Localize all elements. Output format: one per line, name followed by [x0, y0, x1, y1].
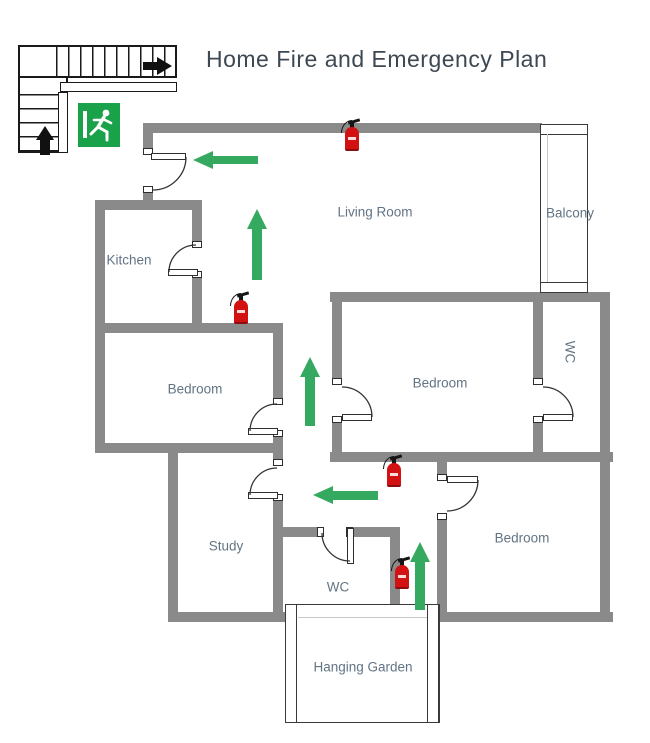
stair-treads: [56, 47, 175, 76]
garden-side-bar: [285, 604, 297, 723]
wall: [273, 333, 283, 402]
balcony-end-bar: [540, 124, 588, 135]
fire-extinguisher-icon: [392, 555, 412, 591]
extinguisher-body: [395, 565, 409, 589]
door-jamb: [533, 378, 543, 385]
door-jamb: [332, 378, 342, 385]
wall: [533, 302, 543, 382]
door-arc: [250, 468, 277, 495]
escape-route-arrow-icon: [300, 357, 320, 426]
wall: [273, 500, 283, 622]
extinguisher-body: [345, 127, 359, 151]
fire-extinguisher-icon: [384, 453, 404, 489]
room-label-wc-upper: WC: [563, 341, 578, 364]
door-jamb: [437, 474, 447, 481]
exit-door-shape: [83, 111, 87, 138]
wall: [283, 527, 320, 537]
room-label-wc-lower: WC: [327, 580, 350, 595]
garden-inner-line: [298, 617, 427, 618]
floor-plan: Home Fire and Emergency Plan: [0, 0, 650, 743]
wall: [95, 323, 283, 333]
stair-treads: [20, 94, 58, 152]
wall: [168, 453, 178, 622]
door-jamb: [533, 416, 543, 423]
wall: [430, 612, 613, 622]
room-label-balcony: Balcony: [546, 206, 594, 221]
door-arc: [447, 480, 478, 511]
door-jamb: [143, 186, 153, 193]
door-arc: [543, 387, 573, 417]
room-label-study: Study: [209, 539, 244, 554]
garden-side-bar: [427, 604, 439, 723]
escape-route-arrow-icon: [247, 209, 267, 280]
page-title: Home Fire and Emergency Plan: [206, 46, 547, 73]
door-jamb: [273, 398, 283, 405]
door-arc: [342, 387, 372, 417]
wall: [192, 210, 202, 245]
escape-route-arrow-icon: [410, 542, 430, 610]
room-label-bedroom-right: Bedroom: [495, 531, 550, 546]
room-label-kitchen: Kitchen: [106, 253, 151, 268]
door-panel: [248, 428, 278, 435]
wall: [600, 292, 610, 622]
extinguisher-body: [234, 300, 248, 324]
wall: [350, 527, 400, 537]
room-label-hanging-garden: Hanging Garden: [313, 660, 412, 675]
running-man-icon: [87, 107, 117, 143]
door-panel: [342, 414, 372, 421]
wall: [95, 200, 202, 210]
door-panel: [347, 528, 354, 564]
wall: [330, 452, 613, 462]
balcony-end-bar: [540, 282, 588, 293]
wall: [168, 612, 292, 622]
door-jamb: [332, 416, 342, 423]
door-arc: [169, 245, 196, 272]
door-panel: [447, 476, 478, 483]
wall: [330, 292, 610, 302]
fire-extinguisher-icon: [342, 117, 362, 153]
escape-route-arrow-icon: [313, 486, 378, 504]
door-arc: [322, 533, 350, 561]
door-jamb: [273, 459, 283, 466]
door-jamb: [317, 527, 324, 537]
extinguisher-body: [387, 463, 401, 487]
escape-route-arrow-icon: [193, 151, 258, 169]
emergency-exit-sign-icon: [78, 103, 120, 147]
room-label-living-room: Living Room: [337, 205, 412, 220]
wall: [332, 302, 342, 382]
stair-rail: [60, 82, 177, 92]
stair-rail: [58, 92, 68, 153]
door-jamb: [192, 241, 202, 248]
wall: [95, 443, 283, 453]
room-label-bedroom-middle: Bedroom: [413, 376, 468, 391]
door-arc: [153, 157, 186, 190]
door-arc: [250, 404, 277, 431]
room-label-bedroom-left: Bedroom: [168, 382, 223, 397]
door-panel: [168, 269, 198, 276]
door-panel: [543, 414, 573, 421]
fire-extinguisher-icon: [231, 290, 251, 326]
door-jamb: [437, 513, 447, 520]
door-panel: [248, 492, 278, 499]
